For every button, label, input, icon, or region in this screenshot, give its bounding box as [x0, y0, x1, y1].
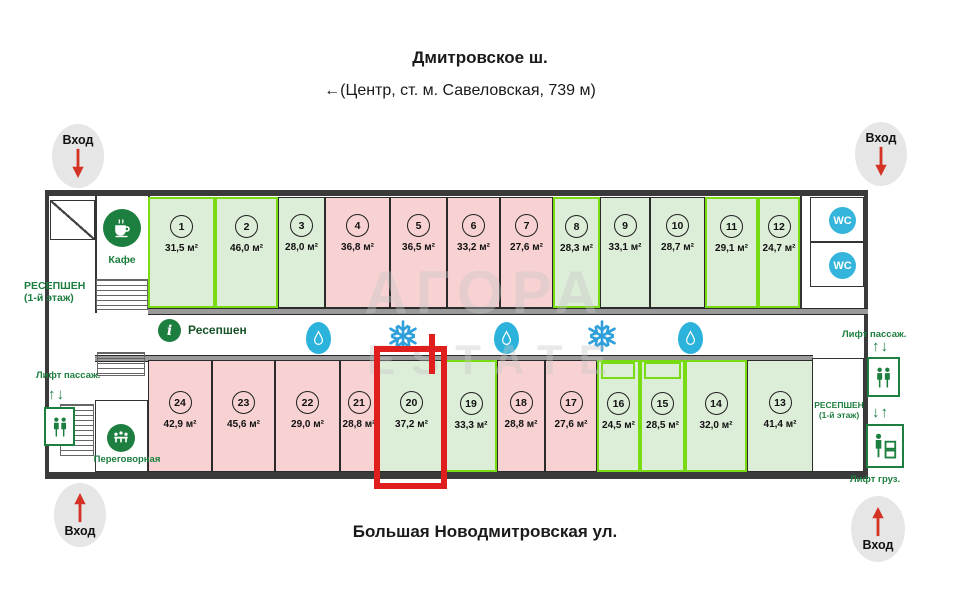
unit-9[interactable]: 933,1 м²: [600, 197, 650, 308]
unit-23[interactable]: 2345,6 м²: [212, 360, 275, 472]
unit-5-area: 36,5 м²: [402, 242, 435, 253]
unit-19-number: 19: [460, 392, 483, 415]
unit-17[interactable]: 1727,6 м²: [545, 360, 597, 472]
wc-icon-2: WC: [829, 252, 856, 279]
snowflake-icon-2: [585, 319, 619, 358]
floor-plan-page: Дмитровское ш. ←(Центр, ст. м. Савеловск…: [0, 0, 960, 612]
lift-freight-label: Лифт груз.: [850, 474, 920, 485]
cafe-icon: [103, 209, 141, 247]
unit-7-number: 7: [515, 214, 538, 237]
reception-label-left: РЕСЕПШЕН (1-й этаж): [24, 280, 100, 304]
unit-3[interactable]: 328,0 м²: [278, 197, 325, 308]
street-title-top: Дмитровское ш.: [250, 48, 710, 68]
reception-label-left-line2: (1-й этаж): [24, 292, 100, 304]
unit-4[interactable]: 436,8 м²: [325, 197, 390, 308]
unit-15-area: 28,5 м²: [646, 420, 679, 431]
unit-2-area: 46,0 м²: [230, 243, 263, 254]
passenger-elevator-icon-left: [44, 407, 75, 446]
entrance-top-right: Вход: [855, 122, 907, 186]
unit-16-number: 16: [607, 392, 630, 415]
unit-7-area: 27,6 м²: [510, 242, 543, 253]
unit-15-number: 15: [651, 392, 674, 415]
unit-10[interactable]: 1028,7 м²: [650, 197, 705, 308]
unit-21-area: 28,8 м²: [343, 419, 376, 430]
unit-12-area: 24,7 м²: [763, 243, 796, 254]
stairs-top-left: [96, 279, 148, 310]
reception-label-right: РЕСЕПШЕН (1-й этаж): [813, 400, 865, 420]
unit-13-number: 13: [769, 391, 792, 414]
unit-14-area: 32,0 м²: [700, 420, 733, 431]
unit-1[interactable]: 131,5 м²: [148, 197, 215, 308]
unit-9-number: 9: [614, 214, 637, 237]
street-title-bottom: Большая Новодмитровская ул.: [250, 522, 720, 542]
unit-12[interactable]: 1224,7 м²: [758, 197, 800, 308]
unit-19-area: 33,3 м²: [455, 420, 488, 431]
unit-3-number: 3: [290, 214, 313, 237]
unit-22-area: 29,0 м²: [291, 419, 324, 430]
unit-8[interactable]: 828,3 м²: [553, 197, 600, 308]
entrance-top-left-label: Вход: [63, 133, 94, 147]
lift-passenger-arrows-left: ↑↓: [48, 386, 65, 403]
unit-13[interactable]: 1341,4 м²: [747, 360, 813, 472]
entrance-top-left: Вход: [52, 124, 104, 188]
unit-10-area: 28,7 м²: [661, 242, 694, 253]
unit-17-number: 17: [560, 391, 583, 414]
unit-13-area: 41,4 м²: [764, 419, 797, 430]
lift-passenger-label-left: Лифт пассаж.: [36, 370, 116, 381]
unit-22-number: 22: [296, 391, 319, 414]
entrance-bottom-right-label: Вход: [863, 538, 894, 552]
unit-5-number: 5: [407, 214, 430, 237]
vestibule-room: [50, 200, 95, 240]
lift-freight-arrows: ↓↑: [872, 404, 889, 421]
unit-24-area: 42,9 м²: [164, 419, 197, 430]
unit-16-area: 24,5 м²: [602, 420, 635, 431]
unit-22[interactable]: 2229,0 м²: [275, 360, 340, 472]
unit-18[interactable]: 1828,8 м²: [497, 360, 545, 472]
unit-17-area: 27,6 м²: [555, 419, 588, 430]
entrance-arrow-down-icon: [71, 147, 85, 179]
entrance-top-right-label: Вход: [866, 131, 897, 145]
unit-21[interactable]: 2128,8 м²: [340, 360, 378, 472]
reception-label-right-line1: РЕСЕПШЕН: [813, 400, 865, 410]
unit-6-number: 6: [462, 214, 485, 237]
entrance-arrow-up-icon: [73, 492, 87, 524]
unit-21-number: 21: [348, 391, 371, 414]
wall-corridor-top: [148, 308, 868, 315]
street-subtitle-top: ←(Центр, ст. м. Савеловская, 739 м): [230, 82, 690, 100]
unit-16-inner-box: [601, 362, 635, 379]
passenger-elevator-icon-right: [867, 357, 900, 397]
reception-desk-label: Ресепшен: [188, 323, 247, 337]
unit-11-area: 29,1 м²: [715, 243, 748, 254]
reception-label-right-line2: (1-й этаж): [813, 410, 865, 420]
unit-18-number: 18: [510, 391, 533, 414]
unit-4-number: 4: [346, 214, 369, 237]
unit-8-number: 8: [565, 215, 588, 238]
unit-23-number: 23: [232, 391, 255, 414]
unit-11-number: 11: [720, 215, 743, 238]
entrance-arrow-up-icon: [871, 506, 885, 538]
unit-6[interactable]: 633,2 м²: [447, 197, 500, 308]
entrance-arrow-down-icon: [874, 145, 888, 177]
freight-elevator-icon: [866, 424, 904, 468]
unit-24-number: 24: [169, 391, 192, 414]
reception-label-left-line1: РЕСЕПШЕН: [24, 280, 100, 292]
water-drop-icon-1: [306, 322, 331, 354]
entrance-bottom-left: Вход: [54, 483, 106, 547]
unit-11[interactable]: 1129,1 м²: [705, 197, 758, 308]
unit-12-number: 12: [768, 215, 791, 238]
water-drop-icon-3: [678, 322, 703, 354]
unit-5[interactable]: 536,5 м²: [390, 197, 447, 308]
meeting-room-icon: [107, 424, 135, 452]
unit-1-number: 1: [170, 215, 193, 238]
entrance-bottom-left-label: Вход: [65, 524, 96, 538]
lift-passenger-arrows-right: ↑↓: [872, 338, 889, 355]
unit-15-inner-box: [644, 362, 681, 379]
unit-23-area: 45,6 м²: [227, 419, 260, 430]
highlight-frame-unit-20: [374, 346, 447, 489]
unit-7[interactable]: 727,6 м²: [500, 197, 553, 308]
unit-18-area: 28,8 м²: [505, 419, 538, 430]
unit-14-number: 14: [705, 392, 728, 415]
meeting-room-label: Переговорная: [82, 454, 172, 465]
wall-top: [45, 190, 868, 196]
info-icon-glyph: i: [167, 324, 172, 338]
cafe-label: Кафе: [98, 254, 146, 266]
unit-8-area: 28,3 м²: [560, 243, 593, 254]
unit-2[interactable]: 246,0 м²: [215, 197, 278, 308]
water-drop-icon-2: [494, 322, 519, 354]
unit-19[interactable]: 1933,3 м²: [445, 360, 497, 472]
unit-3-area: 28,0 м²: [285, 242, 318, 253]
wall-inner-right-top: [800, 196, 802, 308]
unit-1-area: 31,5 м²: [165, 243, 198, 254]
entrance-bottom-right: Вход: [851, 496, 905, 562]
wall-bottom: [45, 472, 868, 479]
wc-icon-1: WC: [829, 207, 856, 234]
unit-14[interactable]: 1432,0 м²: [685, 360, 747, 472]
unit-4-area: 36,8 м²: [341, 242, 374, 253]
unit-10-number: 10: [666, 214, 689, 237]
info-icon: i: [158, 319, 181, 342]
unit-6-area: 33,2 м²: [457, 242, 490, 253]
unit-2-number: 2: [235, 215, 258, 238]
unit-9-area: 33,1 м²: [609, 242, 642, 253]
